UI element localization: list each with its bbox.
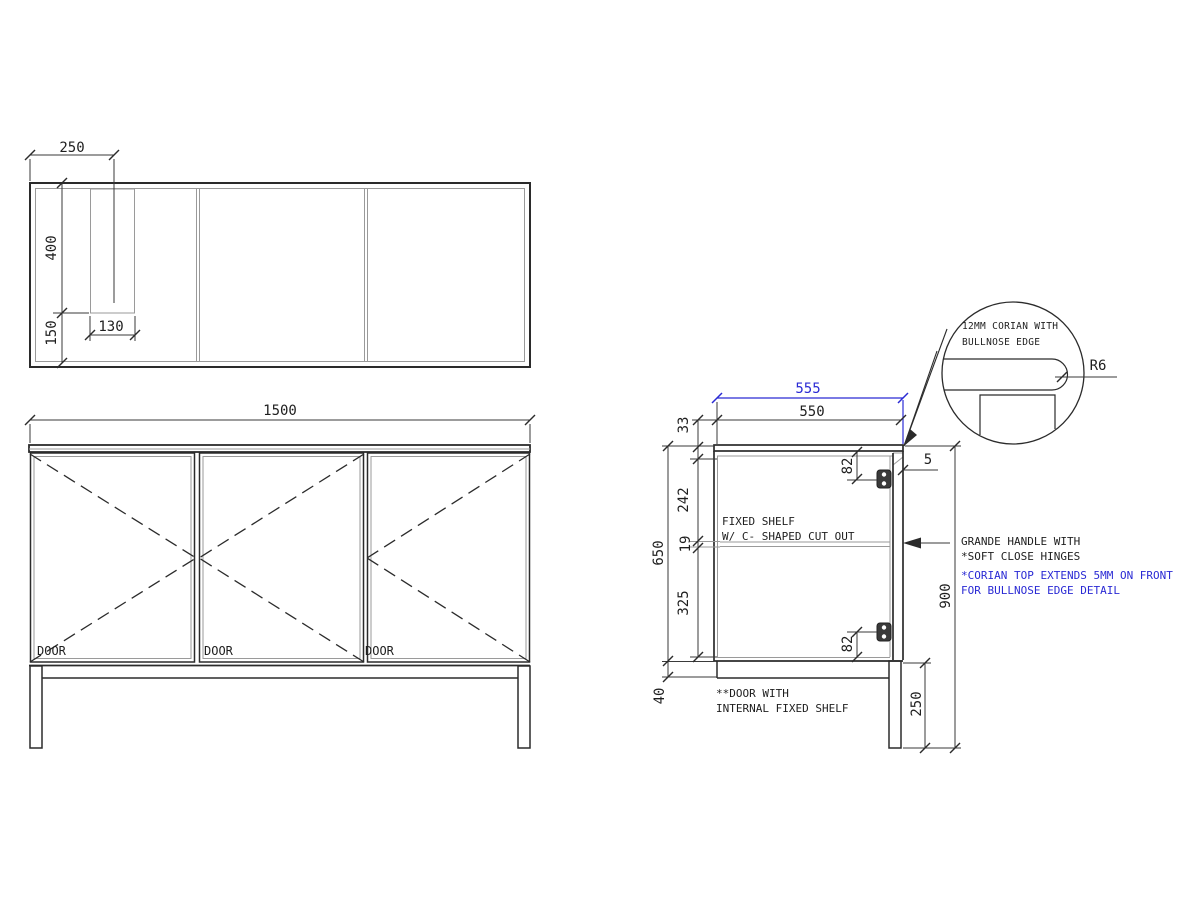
- bullnose-profile: [943, 359, 1068, 390]
- door-swing-lines: [30, 454, 530, 662]
- elevation-view: [25, 415, 535, 748]
- section-dim-33: 33: [677, 417, 691, 434]
- door-note-line1: **DOOR WITH: [716, 688, 789, 699]
- section-dim-19: 19: [679, 536, 693, 553]
- plan-cutout: [91, 189, 135, 313]
- section-dim-82-top: 82: [841, 458, 855, 475]
- door-note-line2: INTERNAL FIXED SHELF: [716, 703, 848, 714]
- detail-note-line1: 12MM CORIAN WITH: [962, 322, 1058, 332]
- drawing-canvas: 250 400 150 130 1500 DOOR DOOR DOOR 555 …: [0, 0, 1200, 900]
- corian-note-line2: FOR BULLNOSE EDGE DETAIL: [961, 585, 1120, 596]
- elevation-door-3: [368, 453, 530, 662]
- door-label-1: DOOR: [37, 645, 66, 657]
- plan-dim-150: 150: [45, 320, 59, 345]
- handle-note-line2: *SOFT CLOSE HINGES: [961, 551, 1080, 562]
- detail-leader: [904, 329, 947, 446]
- elevation-leg-left: [30, 666, 42, 748]
- section-dim-650: 650: [652, 540, 666, 565]
- handle-note-line1: GRANDE HANDLE WITH: [961, 536, 1080, 547]
- detail-radius-label: R6: [1090, 359, 1107, 373]
- elevation-leg-right: [518, 666, 530, 748]
- elevation-dim-lines: [30, 420, 530, 443]
- drawing-linework: [0, 0, 1200, 900]
- handle-arrow-icon: [903, 538, 921, 549]
- detail-note-line2: BULLNOSE EDGE: [962, 338, 1040, 348]
- section-dim-550: 550: [799, 405, 824, 419]
- detail-leader-arrow-icon: [904, 429, 917, 446]
- plan-dim-250: 250: [59, 141, 84, 155]
- fixed-shelf-note-line2: W/ C- SHAPED CUT OUT: [722, 531, 854, 542]
- elevation-dim-1500: 1500: [263, 404, 297, 418]
- hinge-icon: [877, 623, 891, 641]
- corian-note-line1: *CORIAN TOP EXTENDS 5MM ON FRONT: [961, 570, 1173, 581]
- plan-view: [25, 150, 530, 368]
- fixed-shelf-note-line1: FIXED SHELF: [722, 516, 795, 527]
- section-dim-900: 900: [939, 583, 953, 608]
- plan-dim-130: 130: [98, 320, 123, 334]
- door-label-2: DOOR: [204, 645, 233, 657]
- plan-dim-400: 400: [45, 235, 59, 260]
- elevation-door-1: [31, 453, 195, 662]
- section-dim-40: 40: [653, 688, 667, 705]
- section-dim-5: 5: [924, 453, 932, 467]
- door-label-3: DOOR: [365, 645, 394, 657]
- section-dim-325: 325: [677, 590, 691, 615]
- section-dim-250: 250: [910, 691, 924, 716]
- section-corian-top: [714, 445, 903, 451]
- hinge-icon: [877, 470, 891, 488]
- section-dim-242: 242: [677, 487, 691, 512]
- elevation-door-2: [200, 453, 364, 662]
- section-dim-82-bottom: 82: [841, 636, 855, 653]
- section-leg: [889, 661, 901, 748]
- section-dim-555: 555: [795, 382, 820, 396]
